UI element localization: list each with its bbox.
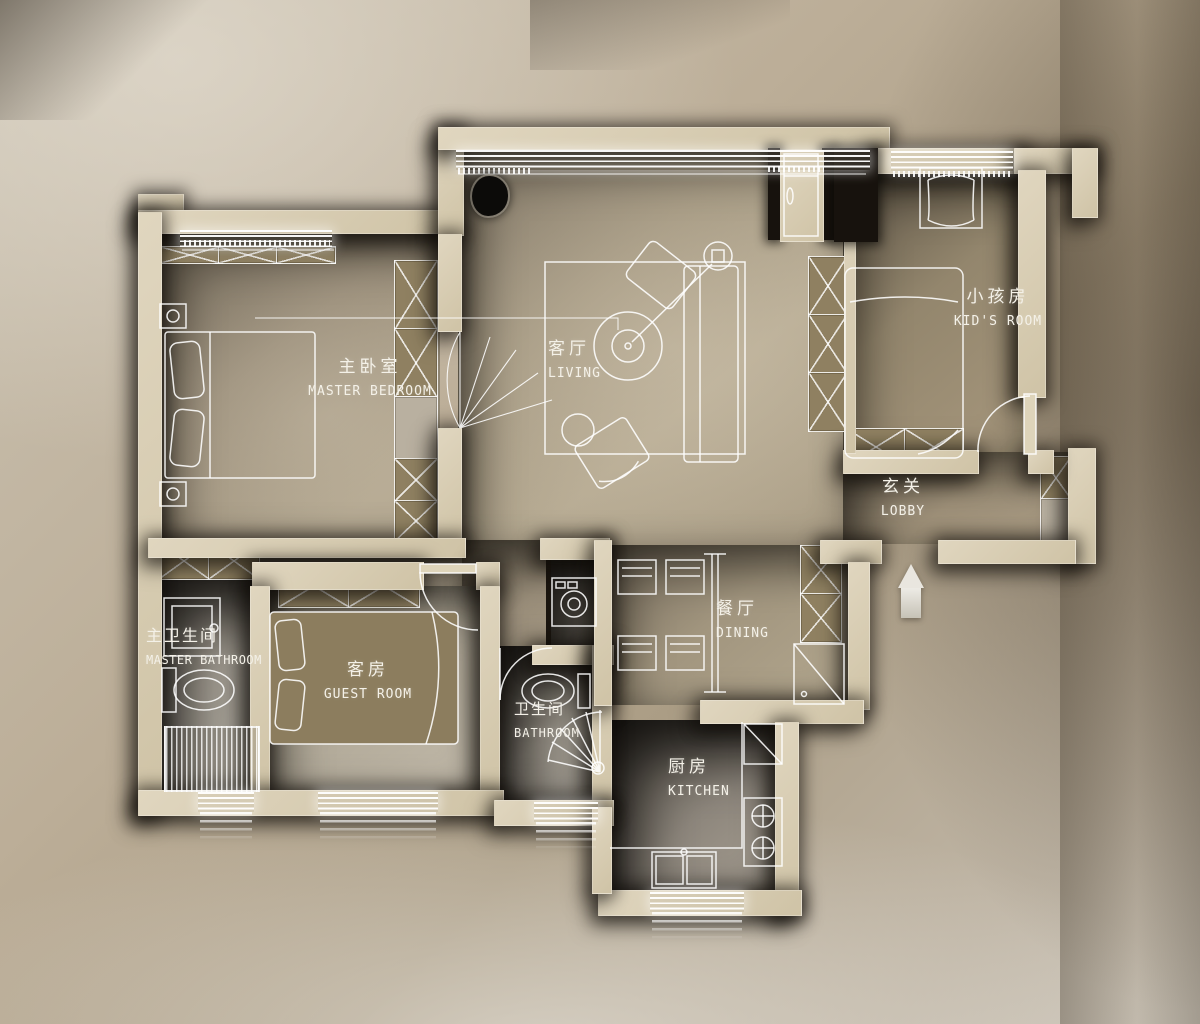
window-bottom-bathroom <box>534 802 598 822</box>
dining-tall-cabinet <box>800 593 842 643</box>
wall <box>938 540 1076 564</box>
wall <box>594 540 612 706</box>
wall <box>252 562 424 590</box>
window-light-spill <box>652 912 742 940</box>
room-label-kitchen: 厨房 KITCHEN <box>668 752 730 799</box>
window-seat-cabinet <box>218 246 278 264</box>
room-label-kids-room: 小孩房 KID'S ROOM <box>938 282 1058 329</box>
kids-wardrobe-cabinet <box>808 256 848 316</box>
window-kids-top <box>891 151 1013 171</box>
wall <box>438 234 462 332</box>
wall <box>480 586 500 796</box>
curtain-zigzag <box>184 240 330 246</box>
entry-arrow-head <box>898 564 924 588</box>
floor-plan: 主卧室 MASTER BEDROOM 客厅 LIVING 小孩房 KID'S R… <box>0 0 1200 1024</box>
entry-arrow-icon <box>898 564 924 620</box>
window-light-spill <box>200 812 252 842</box>
backdrop-streak <box>530 0 790 70</box>
curtain-zigzag <box>458 168 530 174</box>
window-bottom-guest <box>318 792 438 812</box>
wardrobe-cabinet <box>394 396 438 460</box>
wall <box>1072 148 1098 218</box>
wardrobe-cabinet <box>394 260 438 330</box>
room-label-dining: 餐厅 DINING <box>716 594 769 641</box>
wall <box>775 722 799 916</box>
wardrobe-cabinet <box>394 500 438 542</box>
room-label-living: 客厅 LIVING <box>548 334 601 381</box>
wall <box>138 212 162 814</box>
shower-tray <box>164 726 260 792</box>
wall <box>438 127 890 150</box>
wardrobe-cabinet <box>394 458 438 502</box>
room-floor-kitchen <box>608 720 778 892</box>
room-label-guest-room: 客房 GUEST ROOM <box>306 655 430 702</box>
window-bottom-kitchen <box>650 892 744 912</box>
window-light-spill <box>536 822 596 850</box>
curtain-zigzag <box>893 171 1011 177</box>
wall <box>843 450 979 474</box>
wall <box>848 562 870 710</box>
wall <box>148 538 466 558</box>
window-light-spill <box>320 812 436 842</box>
curtain-zigzag <box>768 166 824 172</box>
wall <box>820 540 882 564</box>
wall <box>700 700 864 724</box>
window-seat-cabinet <box>160 246 220 264</box>
wall <box>1028 450 1054 474</box>
kids-wardrobe-cabinet <box>808 372 848 432</box>
room-label-master-bedroom: 主卧室 MASTER BEDROOM <box>298 352 442 399</box>
window-bottom-master-bath <box>198 792 254 812</box>
window-seat-cabinet <box>276 246 336 264</box>
entry-arrow-shaft <box>901 588 921 618</box>
room-label-master-bathroom: 主卫生间 MASTER BATHROOM <box>146 622 262 667</box>
wall <box>438 428 462 544</box>
room-label-lobby: 玄关 LOBBY <box>868 472 938 519</box>
backdrop-streak <box>0 0 230 120</box>
kids-wardrobe-cabinet <box>808 314 848 374</box>
room-label-bathroom: 卫生间 BATHROOM <box>514 698 580 740</box>
